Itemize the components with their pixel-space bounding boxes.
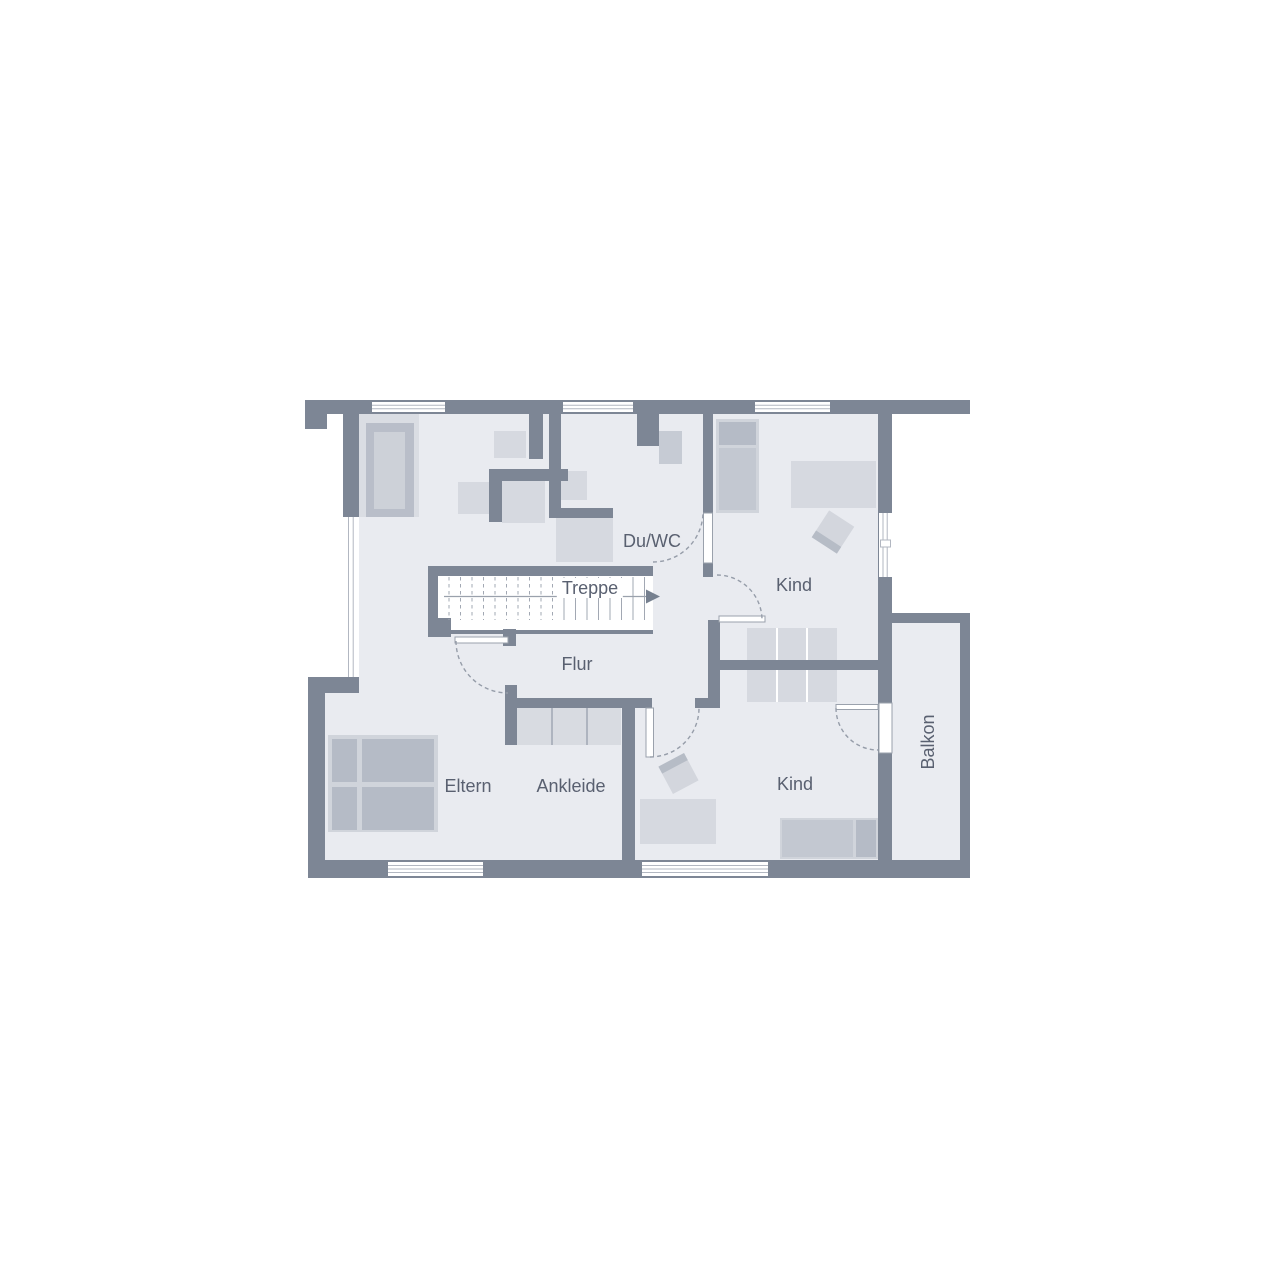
window-bottom-1 bbox=[388, 862, 483, 876]
window-right-kind-top bbox=[879, 513, 892, 577]
room-label-kind-bottom: Kind bbox=[777, 775, 813, 793]
arc-eltern bbox=[456, 641, 508, 693]
room-label-treppe: Treppe bbox=[557, 578, 623, 598]
room-label-duwc: Du/WC bbox=[623, 532, 681, 550]
arc-kind-top bbox=[717, 575, 762, 620]
door-leaf-eltern bbox=[455, 637, 508, 643]
arc-balcony bbox=[836, 708, 878, 750]
window-left bbox=[344, 517, 358, 677]
floor-plan: Du/WC Treppe Kind Flur Eltern Ankleide K… bbox=[0, 0, 1280, 1280]
room-label-balkon: Balkon bbox=[919, 714, 937, 769]
room-label-eltern: Eltern bbox=[444, 777, 491, 795]
window-top-3 bbox=[755, 402, 830, 412]
window-bottom-2 bbox=[642, 862, 768, 876]
plan-linework bbox=[0, 0, 1280, 1280]
door-leaf-kind-top bbox=[719, 616, 765, 622]
room-label-flur: Flur bbox=[562, 655, 593, 673]
stair-treads-dashed bbox=[449, 577, 553, 620]
room-label-ankleide: Ankleide bbox=[536, 777, 605, 795]
room-label-kind-top: Kind bbox=[776, 576, 812, 594]
arc-kind-bottom bbox=[650, 708, 699, 757]
door-leaf-kind-bottom bbox=[646, 708, 654, 757]
door-balcony bbox=[879, 703, 892, 753]
door-leaf-balcony bbox=[836, 705, 878, 710]
window-top-1 bbox=[372, 402, 445, 412]
door-leaf-duwc bbox=[704, 513, 713, 563]
window-top-2 bbox=[563, 402, 633, 412]
